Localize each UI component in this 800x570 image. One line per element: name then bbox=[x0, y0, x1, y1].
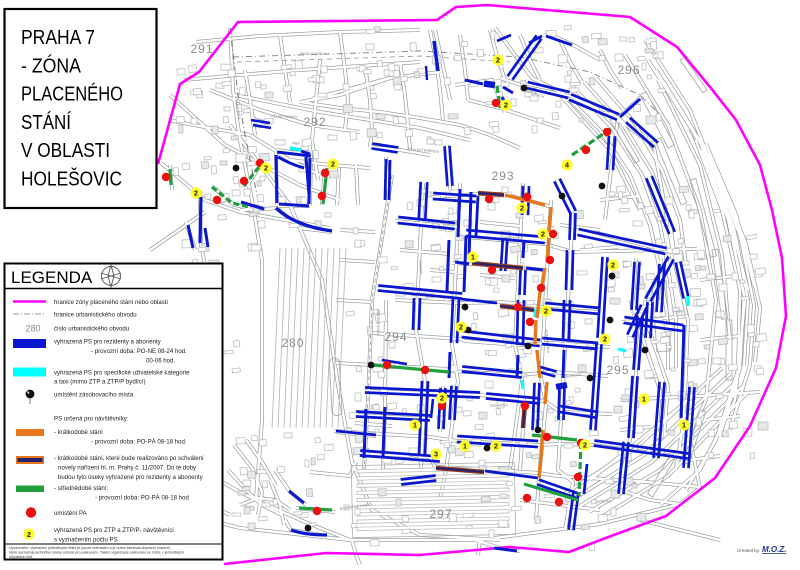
svg-text:s vyznačením počtu PS: s vyznačením počtu PS bbox=[54, 537, 118, 544]
svg-text:PARTYZANSKA: PARTYZANSKA bbox=[300, 52, 327, 56]
svg-text:číslo urbanistického obvodu: číslo urbanistického obvodu bbox=[54, 326, 129, 333]
svg-text:3: 3 bbox=[434, 450, 438, 459]
svg-text:292: 292 bbox=[303, 115, 326, 129]
svg-text:1: 1 bbox=[413, 421, 417, 430]
svg-text:2: 2 bbox=[504, 101, 508, 110]
svg-text:ARGENTINSKA: ARGENTINSKA bbox=[376, 310, 380, 336]
svg-text:280: 280 bbox=[281, 336, 304, 350]
svg-text:2: 2 bbox=[194, 189, 198, 198]
svg-text:2: 2 bbox=[459, 323, 463, 332]
svg-text:které vyznačuje jednotlivé úse: které vyznačuje jednotlivé úseky určené … bbox=[9, 551, 184, 555]
svg-text:PLACENÉHO: PLACENÉHO bbox=[21, 83, 123, 106]
svg-text:2: 2 bbox=[27, 530, 31, 539]
svg-text:JATECNI: JATECNI bbox=[497, 465, 512, 470]
svg-text:umístění PA: umístění PA bbox=[54, 510, 88, 517]
svg-text:novely nařízení hl. m. Prahy č: novely nařízení hl. m. Prahy č. 11/2007.… bbox=[58, 465, 197, 472]
svg-text:2: 2 bbox=[331, 160, 335, 169]
svg-text:1: 1 bbox=[463, 442, 467, 451]
svg-text:hranice zóny placeného stání n: hranice zóny placeného stání nebo oblast… bbox=[54, 299, 168, 306]
svg-text:293: 293 bbox=[491, 169, 514, 183]
svg-text:- krátkodobé stání: - krátkodobé stání bbox=[54, 429, 103, 436]
svg-text:2: 2 bbox=[611, 261, 615, 270]
svg-text:vyhrazená PS pro specifické už: vyhrazená PS pro specifické uživatelské … bbox=[54, 370, 190, 377]
svg-text:- provozní doba: PO-PÁ 08-18 h: - provozní doba: PO-PÁ 08-18 hod bbox=[95, 495, 189, 502]
svg-text:2: 2 bbox=[494, 442, 498, 451]
svg-text:296: 296 bbox=[617, 63, 640, 77]
svg-text:M.O.Z.: M.O.Z. bbox=[762, 545, 786, 554]
svg-text:2: 2 bbox=[440, 394, 444, 403]
svg-text:V OBLASTI: V OBLASTI bbox=[21, 140, 110, 162]
svg-text:280: 280 bbox=[25, 324, 40, 334]
svg-text:a taxi (mimo ZTP a ZTP/P bydlí: a taxi (mimo ZTP a ZTP/P bydlící) bbox=[54, 379, 146, 386]
svg-text:budou tyto úseky vyhrazené pro: budou tyto úseky vyhrazené pro rezidenty… bbox=[58, 474, 204, 481]
svg-text:2: 2 bbox=[264, 164, 268, 173]
svg-text:2: 2 bbox=[583, 441, 587, 450]
svg-text:HOLEŠOVIC: HOLEŠOVIC bbox=[21, 168, 122, 191]
svg-text:hranice urbanistického obvodu: hranice urbanistického obvodu bbox=[54, 312, 137, 319]
svg-text:- provozní doba: PO-NE 08-24: - provozní doba: PO-NE 08-24 hod. bbox=[91, 348, 187, 355]
svg-text:PS určená pro návštěvníky:: PS určená pro návštěvníky: bbox=[54, 416, 129, 423]
svg-text:- ZÓNA: - ZÓNA bbox=[21, 54, 82, 77]
svg-text:00-06 hod.: 00-06 hod. bbox=[146, 358, 175, 365]
svg-text:2: 2 bbox=[541, 230, 545, 239]
svg-text:Created by:: Created by: bbox=[737, 548, 760, 553]
svg-text:JATECNI: JATECNI bbox=[596, 499, 611, 504]
svg-text:1: 1 bbox=[682, 421, 686, 430]
svg-text:LEGENDA: LEGENDA bbox=[11, 268, 93, 287]
svg-text:případech lišit.: případech lišit. bbox=[9, 555, 33, 559]
svg-text:PRAHA 7: PRAHA 7 bbox=[21, 27, 95, 49]
svg-text:295: 295 bbox=[606, 363, 629, 377]
svg-text:STÁNÍ: STÁNÍ bbox=[21, 111, 71, 134]
svg-text:1: 1 bbox=[642, 395, 646, 404]
svg-text:2: 2 bbox=[603, 335, 607, 344]
svg-text:- provozní doba: PO-PÁ 08-18 h: - provozní doba: PO-PÁ 08-18 hod. bbox=[91, 439, 187, 446]
svg-text:- krátkodobé stání, které bude: - krátkodobé stání, které bude realizová… bbox=[54, 455, 204, 462]
svg-text:2: 2 bbox=[496, 56, 500, 65]
svg-text:2: 2 bbox=[520, 204, 524, 213]
svg-text:vyhrazená PS pro rezidenty a a: vyhrazená PS pro rezidenty a abonenty bbox=[54, 339, 162, 346]
svg-text:291: 291 bbox=[190, 42, 213, 56]
svg-text:2: 2 bbox=[544, 307, 548, 316]
svg-text:vyhrazená PS pro ZTP a ZTP/P-: vyhrazená PS pro ZTP a ZTP/P- návštěvníc… bbox=[54, 527, 174, 534]
svg-text:- střednědobé stání:: - střednědobé stání: bbox=[54, 485, 109, 492]
svg-text:294: 294 bbox=[384, 330, 407, 344]
svg-text:Upozornění: Vyznačení jednotl: Upozornění: Vyznačení jednotlivých těles… bbox=[9, 546, 171, 550]
svg-text:umístění zásobovacího místa: umístění zásobovacího místa bbox=[54, 392, 134, 399]
svg-text:1: 1 bbox=[471, 253, 475, 262]
svg-text:297: 297 bbox=[429, 507, 452, 521]
